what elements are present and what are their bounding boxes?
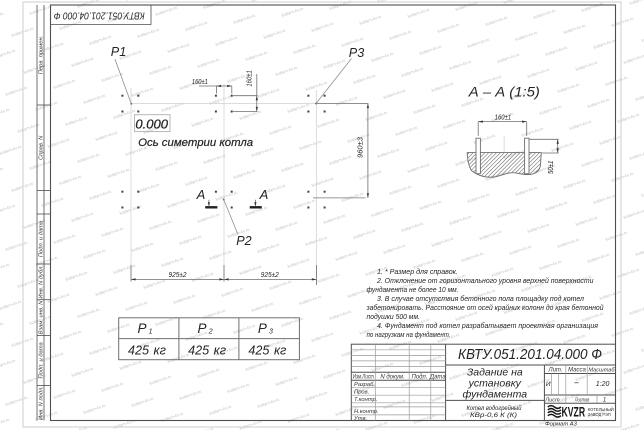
svg-text:Подп.: Подп. (412, 374, 428, 380)
svg-text:Лист: Лист (544, 398, 560, 404)
svg-text:925±2: 925±2 (169, 270, 188, 279)
svg-text:Подп. и дата: Подп. и дата (38, 341, 44, 378)
svg-text:P3: P3 (349, 46, 364, 60)
svg-text:КВТУ.051.201.04.000 Ф: КВТУ.051.201.04.000 Ф (54, 10, 145, 22)
svg-text:Взам. инв. N: Взам. инв. N (38, 300, 44, 335)
svg-text:фундамента: фундамента (463, 389, 528, 401)
svg-text:Т.контр.: Т.контр. (354, 397, 377, 403)
svg-text:Разраб.: Разраб. (354, 382, 375, 388)
svg-text:фундамента не более 10 мм.: фундамента не более 10 мм. (367, 285, 459, 294)
svg-text:Инв. N подл.: Инв. N подл. (38, 386, 44, 420)
svg-text:забетонировать. Расстояние от: забетонировать. Расстояние от осей крайн… (366, 303, 604, 312)
svg-text:А – А (1:5): А – А (1:5) (468, 83, 540, 99)
svg-text:Справ. N: Справ. N (38, 135, 44, 160)
svg-text:1: 1 (603, 398, 606, 404)
svg-text:Листов: Листов (574, 398, 589, 404)
svg-text:960±3: 960±3 (356, 136, 365, 158)
svg-text:425: 425 (128, 342, 150, 357)
svg-text:ЗАВОД РЭП: ЗАВОД РЭП (588, 412, 611, 417)
svg-text:1. * Размер для справок.: 1. * Размер для справок. (377, 267, 458, 276)
svg-text:3. В случае отсутствия бетонно: 3. В случае отсутствия бетонного пола пл… (377, 294, 584, 303)
svg-text:Масса: Масса (568, 368, 586, 374)
svg-text:Задание на: Задание на (467, 366, 523, 378)
svg-text:160±1: 160±1 (245, 70, 254, 87)
svg-text:160±1: 160±1 (192, 77, 208, 86)
svg-text:Утв.: Утв. (353, 416, 367, 422)
svg-text:кг: кг (154, 342, 167, 357)
svg-text:425: 425 (188, 342, 210, 357)
svg-text:А: А (259, 187, 269, 202)
svg-text:P2: P2 (236, 234, 251, 248)
svg-text:Инв. N дубл.: Инв. N дубл. (38, 265, 44, 299)
svg-text:Ось симетрии котла: Ось симетрии котла (138, 137, 253, 149)
svg-text:А: А (196, 187, 206, 202)
svg-text:P1: P1 (111, 45, 126, 59)
svg-text:–: – (573, 378, 579, 387)
svg-text:N докум.: N докум. (380, 374, 404, 380)
svg-text:Формат А3: Формат А3 (545, 422, 577, 428)
svg-text:Н.контр.: Н.контр. (354, 409, 379, 415)
svg-text:подушки 500 мм.: подушки 500 мм. (367, 312, 421, 321)
svg-text:кг: кг (214, 342, 227, 357)
svg-text:925±2: 925±2 (261, 270, 280, 279)
svg-text:КВТУ.051.201.04.000 Ф: КВТУ.051.201.04.000 Ф (458, 347, 602, 363)
svg-text:2. Отклонение от горизонтально: 2. Отклонение от горизонтального уровня … (376, 276, 593, 285)
svg-text:1:20: 1:20 (596, 381, 610, 388)
svg-text:И: И (546, 381, 551, 388)
svg-text:160±1: 160±1 (495, 112, 512, 121)
svg-text:Масштаб: Масштаб (588, 368, 615, 374)
svg-text:Подп. и дата: Подп. и дата (38, 220, 44, 257)
svg-text:по нагрузкам на фундамент.: по нагрузкам на фундамент. (367, 330, 451, 339)
svg-text:4. Фундамент под котел разраба: 4. Фундамент под котел разрабатывает про… (377, 321, 598, 330)
svg-text:Изм.Лист: Изм.Лист (353, 374, 374, 380)
svg-text:Пров.: Пров. (354, 390, 369, 396)
svg-text:Перв. примен.: Перв. примен. (38, 36, 44, 75)
svg-text:50±1: 50±1 (546, 161, 555, 175)
svg-text:Дата: Дата (429, 374, 446, 380)
svg-text:кг: кг (274, 342, 287, 357)
svg-text:KVZR: KVZR (562, 405, 586, 420)
svg-text:Лит.: Лит. (547, 368, 562, 374)
svg-text:КВр-0,6 К (К): КВр-0,6 К (К) (470, 412, 517, 419)
svg-text:425: 425 (248, 342, 270, 357)
svg-text:0.000: 0.000 (135, 117, 168, 132)
